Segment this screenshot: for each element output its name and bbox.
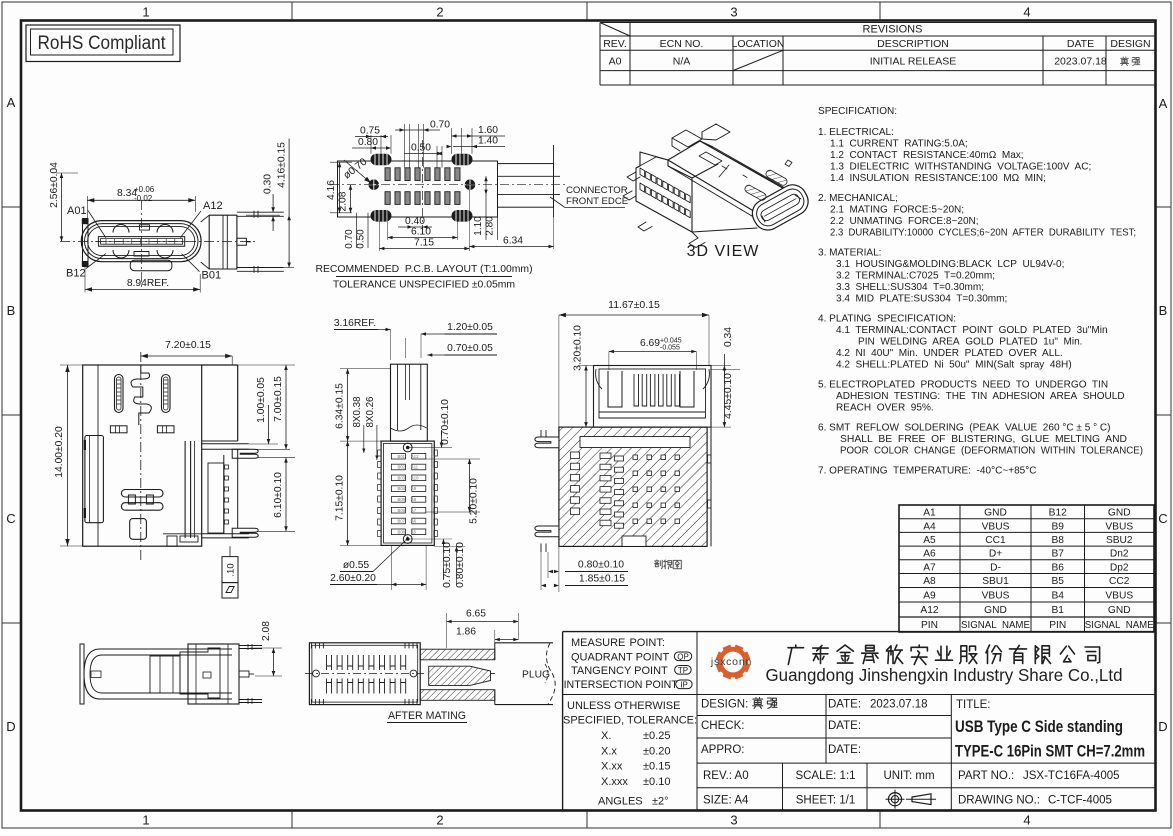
- svg-text:A11: A11: [411, 465, 419, 470]
- svg-text:Dn2: Dn2: [1110, 549, 1129, 560]
- svg-text:USB Type C Side standing: USB Type C Side standing: [955, 718, 1123, 736]
- svg-text:MEASURE POINT:: MEASURE POINT:: [571, 637, 665, 649]
- svg-text:2: 2: [436, 813, 443, 828]
- svg-text:jsxconn: jsxconn: [710, 656, 752, 668]
- svg-text:PART NO.:: PART NO.:: [958, 770, 1014, 782]
- svg-text:TP: TP: [678, 666, 688, 675]
- svg-text:6.34±0.15: 6.34±0.15: [335, 383, 346, 429]
- svg-text:4. PLATING SPECIFICATION:: 4. PLATING SPECIFICATION:: [818, 314, 956, 325]
- svg-text:A1: A1: [923, 508, 936, 519]
- svg-text:B07: B07: [398, 519, 406, 524]
- svg-text:INTERSECTION POINT: INTERSECTION POINT: [564, 679, 679, 691]
- svg-text:A: A: [1159, 96, 1168, 111]
- svg-text:0.34: 0.34: [723, 327, 734, 347]
- svg-text:A12: A12: [411, 454, 419, 459]
- svg-text:QP: QP: [677, 652, 689, 661]
- svg-text:7.20±0.15: 7.20±0.15: [165, 340, 211, 351]
- svg-text:REACH OVER 95%.: REACH OVER 95%.: [836, 403, 934, 414]
- svg-text:7.15: 7.15: [414, 238, 434, 249]
- svg-text:3.16REF.: 3.16REF.: [334, 318, 376, 329]
- svg-text:2.56±0.04: 2.56±0.04: [49, 162, 60, 208]
- svg-text:ECN NO.: ECN NO.: [660, 38, 704, 50]
- svg-text:CHECK:: CHECK:: [701, 720, 744, 732]
- svg-text:B02: B02: [398, 465, 406, 470]
- svg-text:PLUG: PLUG: [522, 670, 550, 681]
- svg-text:1.4 INSULATION RESISTANCE:10: 1.4 INSULATION RESISTANCE:100 MΩ MIN;: [830, 173, 1046, 184]
- svg-text:B12: B12: [66, 268, 86, 280]
- svg-text:1: 1: [142, 813, 149, 828]
- svg-text:3: 3: [730, 5, 737, 20]
- svg-text:DRAWING NO.:: DRAWING NO.:: [958, 795, 1040, 807]
- svg-text:1.20±0.05: 1.20±0.05: [447, 322, 493, 333]
- svg-text:DESIGN: DESIGN: [1110, 38, 1150, 50]
- svg-text:A4: A4: [923, 521, 936, 532]
- svg-text:B6: B6: [1052, 562, 1065, 573]
- svg-text:DATE:: DATE:: [828, 720, 861, 732]
- svg-text:6.69: 6.69: [640, 338, 660, 349]
- svg-text:3.1 HOUSING&MOLDING:BLACK LC: 3.1 HOUSING&MOLDING:BLACK LCP UL94V-0;: [836, 259, 1064, 270]
- svg-text:A7: A7: [923, 562, 936, 573]
- svg-text:PIN: PIN: [1049, 620, 1066, 631]
- svg-text:4.2 NI 40U" Min. UNDER PL: 4.2 NI 40U" Min. UNDER PLATED OVER ALL.: [836, 348, 1063, 359]
- svg-text:0.70: 0.70: [430, 120, 450, 131]
- svg-text:3.4 MID PLATE:SUS304 T=0.30: 3.4 MID PLATE:SUS304 T=0.30mm;: [836, 294, 1007, 305]
- svg-text:6.34: 6.34: [503, 236, 523, 247]
- svg-text:REV.: A0: REV.: A0: [703, 770, 749, 782]
- svg-text:1.60: 1.60: [478, 125, 498, 136]
- svg-text:DESCRIPTION: DESCRIPTION: [877, 38, 949, 50]
- svg-text:0.40: 0.40: [405, 216, 425, 227]
- svg-text:RECOMMENDED P.C.B. LAYOUT: RECOMMENDED P.C.B. LAYOUT (T:1.00mm): [315, 264, 532, 275]
- svg-text:SPECIFIED, TOLERANCE:: SPECIFIED, TOLERANCE:: [563, 715, 697, 727]
- svg-text:C-TCF-4005: C-TCF-4005: [1048, 795, 1112, 807]
- svg-text:B1: B1: [1052, 605, 1065, 616]
- svg-text:AFTER MATING: AFTER MATING: [388, 710, 466, 722]
- svg-text:1.2 CONTACT RESISTANCE:40mΩ: 1.2 CONTACT RESISTANCE:40mΩ Max;: [830, 150, 1024, 161]
- svg-text:VBUS: VBUS: [982, 590, 1010, 601]
- svg-text:A9: A9: [923, 590, 936, 601]
- svg-text:N/A: N/A: [673, 56, 691, 68]
- svg-text:±0.15: ±0.15: [643, 761, 670, 773]
- svg-text:7.15±0.10: 7.15±0.10: [335, 475, 346, 521]
- svg-text:2: 2: [436, 5, 443, 20]
- svg-text:DATE: DATE: [1067, 38, 1094, 50]
- svg-text:2.08: 2.08: [261, 621, 272, 641]
- svg-text:A8: A8: [923, 576, 936, 587]
- svg-text:2.08: 2.08: [338, 191, 349, 211]
- svg-text:1.85±0.15: 1.85±0.15: [579, 574, 625, 585]
- svg-text:D: D: [6, 719, 15, 734]
- svg-text:0.50: 0.50: [356, 229, 367, 249]
- svg-text:B01: B01: [202, 270, 222, 282]
- svg-text:B05: B05: [398, 497, 406, 502]
- svg-text:0.80±0.10: 0.80±0.10: [578, 560, 624, 571]
- svg-text:C: C: [6, 511, 15, 526]
- svg-text:GND: GND: [1108, 508, 1131, 519]
- svg-text:UNLESS OTHERWISE: UNLESS OTHERWISE: [567, 700, 681, 712]
- svg-text:SHEET: 1/1: SHEET: 1/1: [796, 795, 855, 807]
- svg-text:PIN: PIN: [921, 620, 938, 631]
- svg-text:A6: A6: [923, 549, 936, 560]
- svg-text:TITLE:: TITLE:: [956, 699, 991, 711]
- svg-text:ANGLES: ANGLES: [598, 796, 643, 808]
- svg-text:ø0.55: ø0.55: [343, 560, 370, 571]
- svg-text:A12: A12: [203, 200, 223, 212]
- svg-text:A8: A8: [411, 497, 417, 502]
- svg-text:6.10: 6.10: [411, 227, 431, 238]
- svg-text:A5: A5: [411, 529, 417, 534]
- svg-text:0.75: 0.75: [360, 126, 380, 137]
- svg-text:4.1 TERMINAL:CONTACT POINT: 4.1 TERMINAL:CONTACT POINT GOLD PLATED 3…: [836, 325, 1108, 336]
- svg-text:QUADRANT POINT: QUADRANT POINT: [571, 652, 669, 664]
- svg-text:SBU2: SBU2: [1106, 535, 1133, 546]
- svg-text:DESIGN:: DESIGN:: [701, 699, 748, 711]
- svg-text:5. ELECTROPLATED PRODUCTS NE: 5. ELECTROPLATED PRODUCTS NEED TO UNDERG…: [818, 380, 1108, 391]
- svg-text:2023.07.18: 2023.07.18: [870, 699, 928, 711]
- svg-text:A5: A5: [923, 535, 936, 546]
- svg-text:3: 3: [730, 813, 737, 828]
- svg-text:VBUS: VBUS: [982, 521, 1010, 532]
- svg-text:LOCATION: LOCATION: [732, 38, 785, 50]
- svg-text:UNIT: mm: UNIT: mm: [883, 770, 934, 782]
- svg-text:6.65: 6.65: [466, 609, 486, 620]
- svg-text:C: C: [1158, 511, 1167, 526]
- svg-text:TYPE-C 16Pin SMT CH=7.2mm: TYPE-C 16Pin SMT CH=7.2mm: [955, 743, 1145, 761]
- svg-text:2023.07.18: 2023.07.18: [1054, 56, 1107, 68]
- svg-text:3D VIEW: 3D VIEW: [687, 243, 760, 260]
- svg-text:B5: B5: [1052, 576, 1065, 587]
- svg-text:6. SMT REFLOW SOLDERING (PE: 6. SMT REFLOW SOLDERING (PEAK VALUE 260 …: [818, 423, 1111, 434]
- svg-text:B12: B12: [1049, 508, 1067, 519]
- svg-text:RoHS Compliant: RoHS Compliant: [38, 33, 167, 54]
- svg-text:B4: B4: [1052, 590, 1065, 601]
- svg-text:2. MECHANICAL;: 2. MECHANICAL;: [818, 193, 898, 204]
- svg-text:REV.: REV.: [603, 38, 627, 50]
- svg-text:APPRO:: APPRO:: [701, 744, 744, 756]
- svg-text:7.00±0.15: 7.00±0.15: [273, 376, 284, 422]
- svg-text:SIGNAL NAME: SIGNAL NAME: [961, 620, 1030, 631]
- svg-text:3.3 SHELL:SUS304 T=0.30mm;: 3.3 SHELL:SUS304 T=0.30mm;: [836, 282, 984, 293]
- svg-text:7. OPERATING TEMPERATURE: -4: 7. OPERATING TEMPERATURE: -40°C~+85°C: [818, 466, 1037, 477]
- svg-text:0.80: 0.80: [358, 137, 378, 148]
- svg-text:PIN WELDING AREA GOLD PLAT: PIN WELDING AREA GOLD PLATED 1u" Min.: [858, 337, 1082, 348]
- svg-text:B03: B03: [398, 475, 406, 480]
- svg-text:2.3 DURABILITY:10000 CYCLES;: 2.3 DURABILITY:10000 CYCLES;6~20N AFTER …: [830, 228, 1136, 239]
- svg-text:Dp2: Dp2: [1110, 562, 1129, 573]
- svg-text:B01: B01: [398, 454, 406, 459]
- svg-text:1: 1: [142, 5, 149, 20]
- svg-text:SIZE: A4: SIZE: A4: [703, 795, 749, 807]
- svg-text:5.20±0.10: 5.20±0.10: [469, 478, 480, 524]
- svg-text:A7: A7: [411, 508, 417, 513]
- svg-text:B8: B8: [1052, 535, 1065, 546]
- svg-text:CC1: CC1: [985, 535, 1006, 546]
- svg-text:A9: A9: [411, 486, 417, 491]
- svg-text:TOLERANCE UNSPECIFIED ±0.05m: TOLERANCE UNSPECIFIED ±0.05mm: [333, 280, 515, 291]
- svg-text:A6: A6: [411, 519, 417, 524]
- svg-text:8X0.38: 8X0.38: [352, 396, 363, 428]
- svg-text:GND: GND: [1108, 605, 1131, 616]
- svg-text:±0.10: ±0.10: [643, 776, 670, 788]
- svg-text:.10: .10: [226, 563, 237, 576]
- svg-text:SBU1: SBU1: [982, 576, 1009, 587]
- svg-text:8X0.26: 8X0.26: [365, 396, 376, 428]
- svg-text:DATE:: DATE:: [828, 744, 861, 756]
- svg-text:±2°: ±2°: [652, 796, 669, 808]
- svg-text:A: A: [7, 95, 16, 110]
- svg-text:GND: GND: [984, 605, 1007, 616]
- svg-text:3. MATERIAL:: 3. MATERIAL:: [818, 248, 881, 259]
- svg-text:B7: B7: [1052, 549, 1065, 560]
- svg-text:POOR COLOR CHANGE (DEFORMAT: POOR COLOR CHANGE (DEFORMATION WITHIN TO…: [840, 446, 1143, 457]
- svg-text:-0.02: -0.02: [134, 194, 153, 203]
- svg-text:0.30: 0.30: [263, 174, 274, 194]
- svg-text:IP: IP: [680, 680, 688, 689]
- svg-text:4.16±0.15: 4.16±0.15: [277, 142, 288, 188]
- svg-text:Guangdong Jinshengxin Industry: Guangdong Jinshengxin Industry Share Co.…: [766, 665, 1123, 685]
- svg-text:±0.20: ±0.20: [643, 746, 670, 758]
- svg-text:SPECIFICATION:: SPECIFICATION:: [818, 106, 897, 117]
- svg-text:2.80: 2.80: [485, 216, 496, 236]
- svg-text:X.: X.: [601, 730, 611, 742]
- svg-text:D: D: [1158, 719, 1167, 734]
- svg-text:11.67±0.15: 11.67±0.15: [608, 299, 660, 311]
- svg-text:B: B: [1159, 303, 1168, 318]
- svg-text:DATE:: DATE:: [828, 699, 861, 711]
- svg-text:REVISIONS: REVISIONS: [863, 24, 923, 36]
- svg-text:14.00±0.20: 14.00±0.20: [54, 426, 65, 478]
- svg-text:3.20±0.10: 3.20±0.10: [573, 325, 584, 371]
- svg-text:B08: B08: [398, 529, 406, 534]
- svg-text:±0.25: ±0.25: [643, 730, 670, 742]
- svg-text:CC2: CC2: [1109, 576, 1130, 587]
- svg-text:2.1 MATING FORCE:5~20N;: 2.1 MATING FORCE:5~20N;: [830, 205, 964, 216]
- svg-text:A12: A12: [920, 605, 938, 616]
- svg-text:8.94REF.: 8.94REF.: [127, 278, 169, 289]
- svg-text:GND: GND: [984, 508, 1007, 519]
- svg-text:SHALL BE FREE OF BLISTERIN: SHALL BE FREE OF BLISTERING, GLUE MELTIN…: [840, 434, 1127, 445]
- svg-text:1.3 DIELECTRIC WITHSTANDING: 1.3 DIELECTRIC WITHSTANDING VOLTAGE:100V…: [830, 162, 1091, 173]
- svg-text:0.70±0.05: 0.70±0.05: [447, 343, 493, 354]
- svg-text:4.16: 4.16: [326, 180, 337, 200]
- svg-text:SCALE: 1:1: SCALE: 1:1: [795, 770, 855, 782]
- svg-text:VBUS: VBUS: [1105, 521, 1133, 532]
- svg-text:ADHESION TESTING: THE TIN: ADHESION TESTING: THE TIN ADHESION AREA …: [836, 391, 1125, 402]
- svg-text:1.00±0.05: 1.00±0.05: [256, 377, 267, 423]
- svg-text:2.60±0.20: 2.60±0.20: [330, 573, 376, 584]
- svg-text:0.70: 0.70: [344, 229, 355, 249]
- svg-text:D-: D-: [990, 562, 1001, 573]
- svg-text:VBUS: VBUS: [1105, 590, 1133, 601]
- svg-text:-0.055: -0.055: [660, 345, 680, 352]
- svg-text:D+: D+: [989, 549, 1002, 560]
- svg-text:A01: A01: [67, 205, 87, 217]
- svg-text:SIGNAL NAME: SIGNAL NAME: [1085, 620, 1154, 631]
- svg-text:B9: B9: [1052, 521, 1065, 532]
- svg-text:2.2 UNMATING FORCE:8~20N;: 2.2 UNMATING FORCE:8~20N;: [830, 216, 979, 227]
- svg-text:B04: B04: [398, 486, 406, 491]
- svg-text:+0.06: +0.06: [134, 185, 155, 194]
- svg-text:X.xx: X.xx: [601, 761, 623, 773]
- svg-text:TANGENCY POINT: TANGENCY POINT: [571, 665, 668, 677]
- svg-text:4: 4: [1023, 813, 1030, 828]
- svg-text:X.x: X.x: [601, 746, 617, 758]
- svg-text:3.2 TERMINAL:C7025 T=0.20mm;: 3.2 TERMINAL:C7025 T=0.20mm;: [836, 271, 995, 282]
- svg-text:INITIAL RELEASE: INITIAL RELEASE: [870, 56, 957, 68]
- svg-text:JSX-TC16FA-4005: JSX-TC16FA-4005: [1023, 770, 1120, 782]
- svg-text:B: B: [7, 303, 16, 318]
- svg-text:1. ELECTRICAL:: 1. ELECTRICAL:: [818, 127, 894, 138]
- svg-text:FRONT EDCE: FRONT EDCE: [566, 196, 628, 207]
- svg-text:4: 4: [1023, 5, 1030, 20]
- svg-text:A10: A10: [411, 475, 419, 480]
- svg-text:1.1 CURRENT RATING:5.0A;: 1.1 CURRENT RATING:5.0A;: [830, 139, 968, 150]
- svg-text:1.86: 1.86: [456, 627, 476, 638]
- svg-text:A0: A0: [609, 56, 622, 68]
- svg-text:1.10: 1.10: [473, 216, 484, 236]
- svg-text:6.10±0.10: 6.10±0.10: [273, 472, 284, 518]
- svg-text:0.50: 0.50: [411, 143, 431, 154]
- svg-text:X.xxx: X.xxx: [601, 776, 628, 788]
- svg-text:4.2 SHELL:PLATED Ni 50u" M: 4.2 SHELL:PLATED Ni 50u" MIN(Salt spray …: [836, 360, 1072, 371]
- svg-text:1.40: 1.40: [478, 136, 498, 147]
- svg-text:B06: B06: [398, 508, 406, 513]
- svg-text:CONNECTOR: CONNECTOR: [566, 185, 628, 196]
- svg-text:+0.045: +0.045: [660, 338, 682, 345]
